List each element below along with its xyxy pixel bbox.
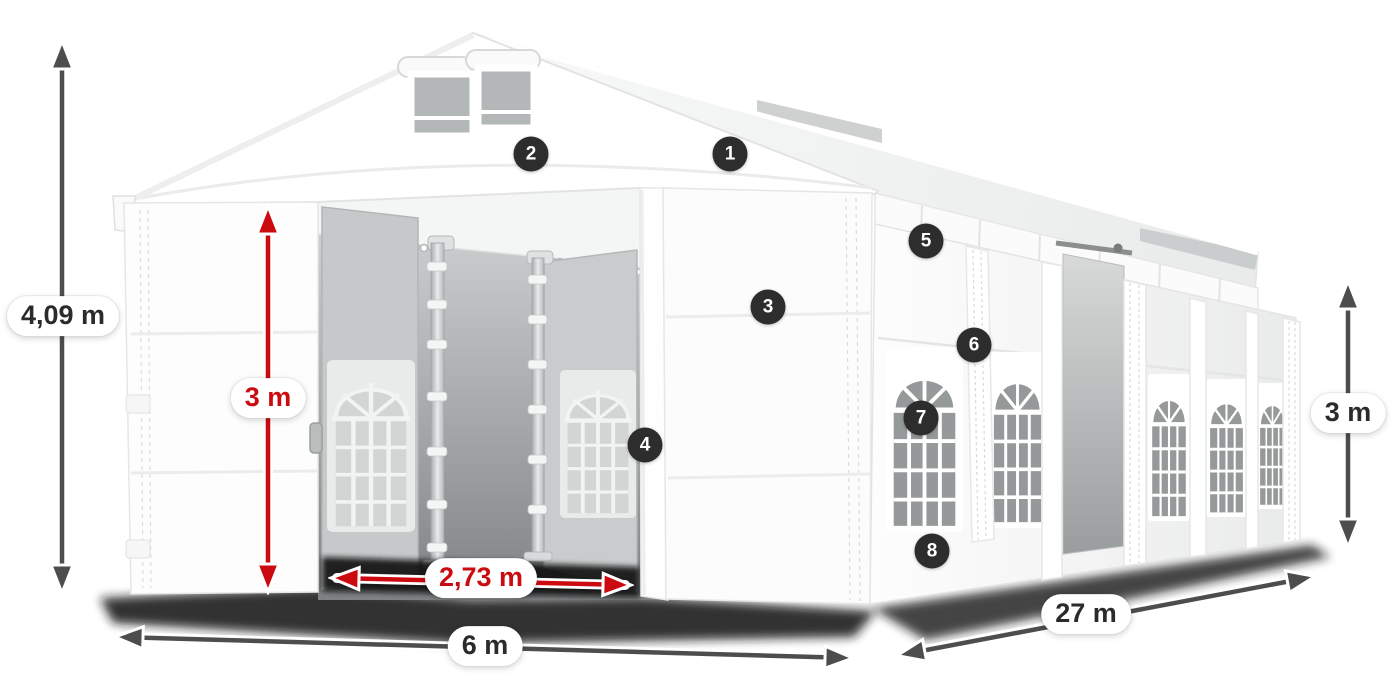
callout-badge-4: 4 <box>628 428 663 463</box>
left-open-door <box>322 207 418 589</box>
callout-badge-5: 5 <box>909 224 944 259</box>
tent-illustration <box>0 0 1400 700</box>
side-open-section <box>1056 243 1132 554</box>
callout-badge-8: 8 <box>915 534 950 569</box>
gable-vent-window <box>466 50 540 128</box>
side-window <box>886 347 963 532</box>
callout-badge-7: 7 <box>904 401 939 436</box>
entrance-width-label: 2,73 m <box>425 558 537 598</box>
callout-badge-1: 1 <box>713 137 748 172</box>
entrance-interior <box>318 185 663 600</box>
entrance-height-label: 3 m <box>231 378 306 418</box>
tent-width-label: 6 m <box>448 626 523 666</box>
callout-badge-6: 6 <box>957 328 992 363</box>
tent-dimension-diagram: 4,09 m 3 m 2,73 m 6 m 27 m 3 m 1 2 3 4 5… <box>0 0 1400 700</box>
tent-length-label: 27 m <box>1041 594 1131 634</box>
callout-badge-2: 2 <box>514 137 549 172</box>
side-window <box>1206 379 1247 517</box>
callout-badge-3: 3 <box>751 290 786 325</box>
door-handle <box>310 423 322 453</box>
side-height-label: 3 m <box>1311 393 1386 433</box>
side-window <box>1148 374 1190 521</box>
gable-vent-window <box>398 57 473 136</box>
total-height-label: 4,09 m <box>7 296 119 336</box>
right-open-door <box>544 250 637 592</box>
side-window <box>988 352 1047 528</box>
